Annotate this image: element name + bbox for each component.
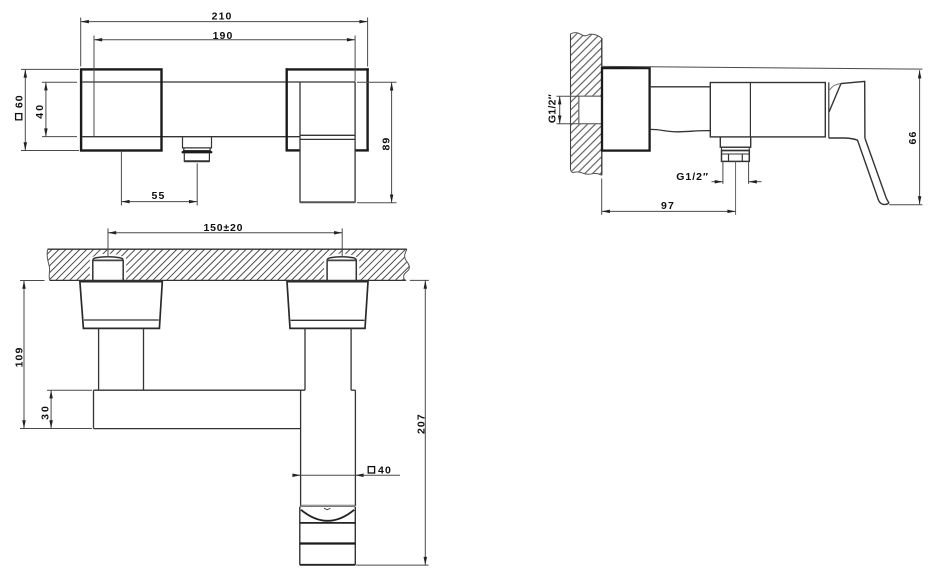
svg-text:210: 210 bbox=[212, 11, 233, 23]
svg-text:55: 55 bbox=[152, 190, 166, 202]
svg-text:109: 109 bbox=[13, 347, 25, 368]
svg-text:40: 40 bbox=[378, 464, 392, 476]
svg-text:150±20: 150±20 bbox=[204, 222, 244, 234]
svg-text:G1/2″: G1/2″ bbox=[546, 94, 558, 123]
svg-text:40: 40 bbox=[34, 103, 46, 119]
svg-text:60: 60 bbox=[14, 94, 26, 108]
svg-text:89: 89 bbox=[381, 137, 393, 151]
svg-text:G1/2″: G1/2″ bbox=[676, 171, 709, 183]
svg-text:207: 207 bbox=[416, 413, 428, 434]
svg-text:66: 66 bbox=[907, 131, 919, 145]
svg-text:97: 97 bbox=[661, 200, 675, 212]
svg-text:190: 190 bbox=[213, 30, 234, 42]
svg-text:30: 30 bbox=[40, 404, 52, 420]
